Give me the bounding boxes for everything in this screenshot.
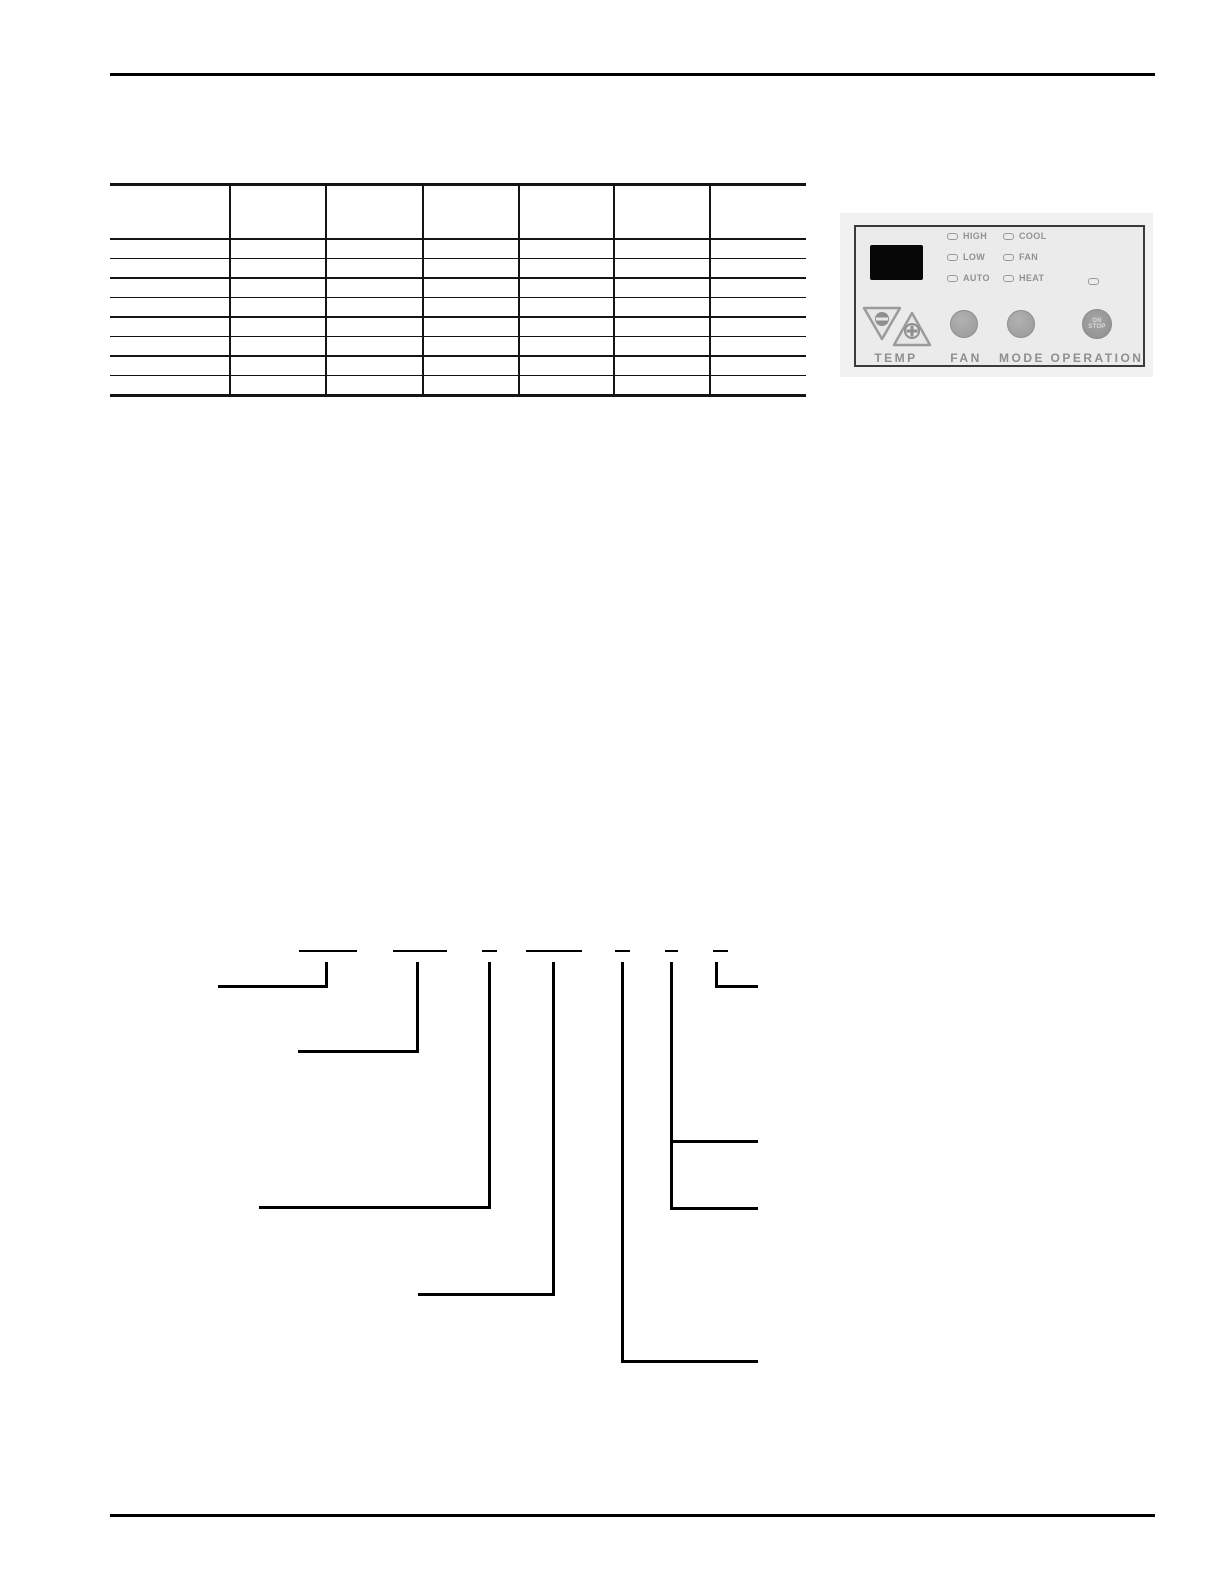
diagram-underline — [615, 950, 630, 952]
diagram-underline — [299, 950, 357, 952]
model-nomenclature-diagram — [0, 0, 1224, 1585]
manual-page: ON STOP TEMP FAN MODE OPERATION HIGHCOOL… — [0, 0, 1224, 1585]
diagram-leader-vertical — [621, 962, 624, 1363]
bottom-rule — [110, 1514, 1155, 1517]
diagram-leader-vertical — [488, 962, 491, 1209]
diagram-underline — [393, 950, 447, 952]
diagram-leader-horizontal — [671, 1207, 758, 1210]
diagram-leader-horizontal — [259, 1206, 491, 1209]
diagram-leader-horizontal — [218, 985, 328, 988]
diagram-underline — [713, 950, 728, 952]
diagram-leader-horizontal — [418, 1293, 555, 1296]
diagram-leader-vertical — [416, 962, 419, 1053]
diagram-leader-vertical — [552, 962, 555, 1296]
diagram-leader-horizontal — [671, 1140, 758, 1143]
diagram-leader-horizontal — [622, 1360, 758, 1363]
diagram-underline — [482, 950, 497, 952]
diagram-leader-horizontal — [716, 985, 758, 988]
diagram-leader-vertical — [670, 962, 673, 1210]
diagram-underline — [526, 950, 582, 952]
diagram-underline — [665, 950, 678, 952]
diagram-leader-horizontal — [298, 1050, 419, 1053]
